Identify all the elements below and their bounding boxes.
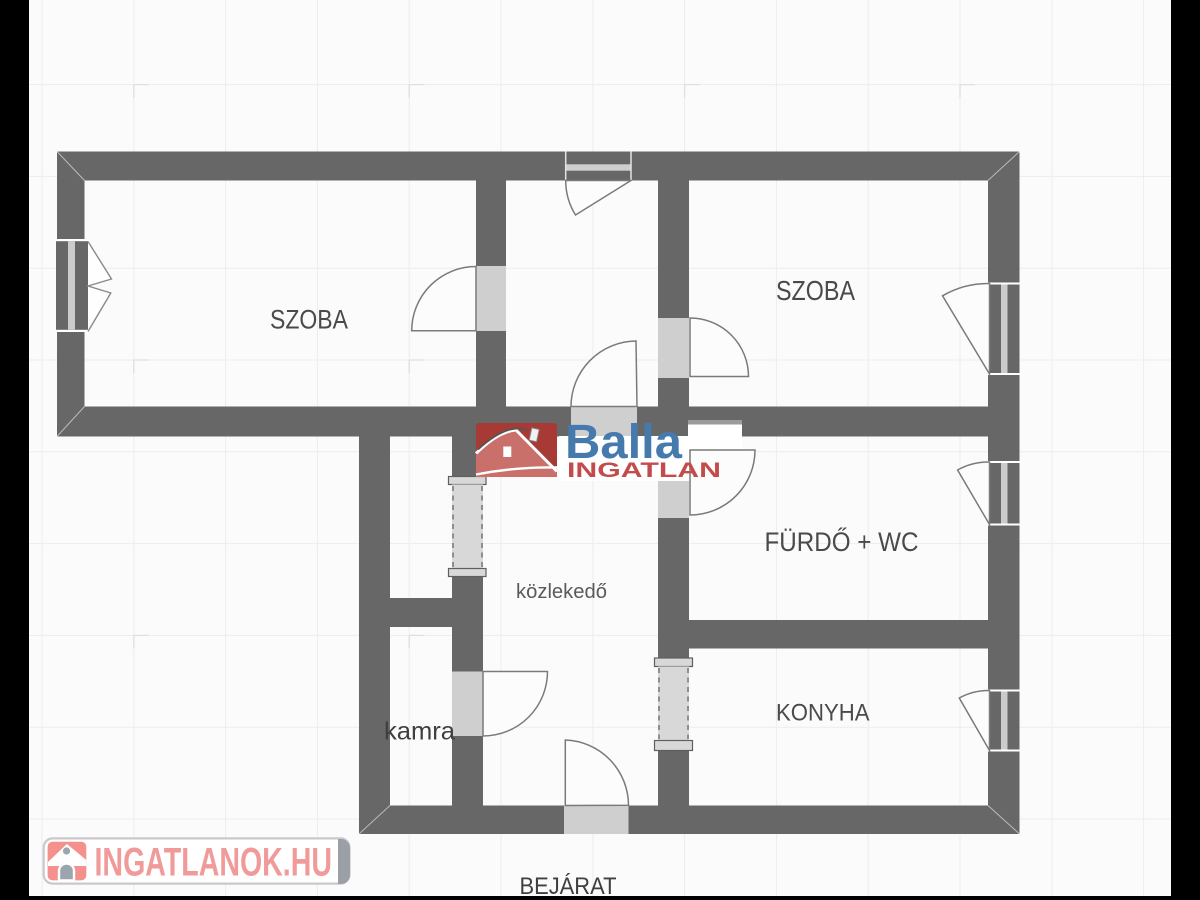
svg-text:kamra: kamra xyxy=(384,718,455,746)
svg-text:FÜRDŐ + WC: FÜRDŐ + WC xyxy=(765,526,919,557)
svg-text:SZOBA: SZOBA xyxy=(270,305,348,335)
svg-text:INGATLANOK.HU: INGATLANOK.HU xyxy=(95,841,333,885)
svg-text:INGATLAN: INGATLAN xyxy=(567,459,721,482)
svg-text:közlekedő: közlekedő xyxy=(516,581,607,603)
svg-text:KONYHA: KONYHA xyxy=(776,700,870,727)
svg-text:SZOBA: SZOBA xyxy=(776,275,855,306)
svg-text:BEJÁRAT: BEJÁRAT xyxy=(520,873,617,900)
